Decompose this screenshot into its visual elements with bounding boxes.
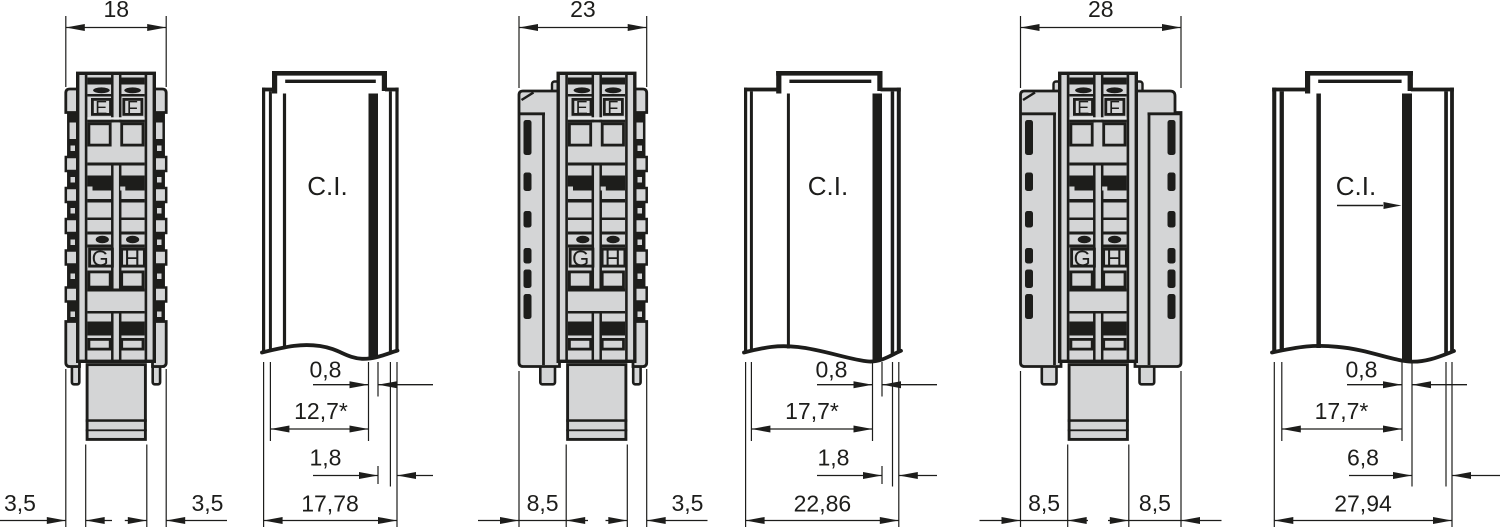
svg-text:23: 23 bbox=[570, 0, 596, 22]
svg-text:3,5: 3,5 bbox=[4, 490, 36, 516]
svg-text:E: E bbox=[1077, 98, 1089, 118]
svg-text:E: E bbox=[95, 98, 107, 118]
svg-text:F: F bbox=[607, 98, 618, 118]
svg-text:F: F bbox=[1109, 98, 1120, 118]
svg-text:28: 28 bbox=[1088, 0, 1114, 22]
svg-text:C.I.: C.I. bbox=[1336, 171, 1376, 201]
svg-text:0,8: 0,8 bbox=[816, 357, 848, 383]
svg-text:17,7*: 17,7* bbox=[785, 398, 839, 424]
svg-text:0,8: 0,8 bbox=[310, 357, 342, 383]
svg-text:8,5: 8,5 bbox=[527, 490, 559, 516]
svg-text:F: F bbox=[127, 98, 138, 118]
svg-text:17,78: 17,78 bbox=[301, 491, 359, 517]
svg-text:3,5: 3,5 bbox=[672, 490, 704, 516]
svg-text:22,86: 22,86 bbox=[794, 491, 852, 517]
svg-text:8,5: 8,5 bbox=[1139, 490, 1171, 516]
svg-text:1,8: 1,8 bbox=[310, 445, 342, 471]
svg-text:8,5: 8,5 bbox=[1028, 490, 1060, 516]
svg-text:G: G bbox=[572, 246, 589, 271]
svg-text:18: 18 bbox=[104, 0, 130, 22]
svg-text:6,8: 6,8 bbox=[1347, 445, 1379, 471]
svg-text:H: H bbox=[605, 246, 621, 271]
svg-text:1,8: 1,8 bbox=[818, 445, 850, 471]
svg-text:3,5: 3,5 bbox=[192, 490, 224, 516]
svg-text:E: E bbox=[576, 98, 588, 118]
svg-text:27,94: 27,94 bbox=[1334, 491, 1392, 517]
svg-text:0,8: 0,8 bbox=[1346, 357, 1378, 383]
svg-text:C.I.: C.I. bbox=[808, 171, 848, 201]
svg-text:12,7*: 12,7* bbox=[294, 398, 348, 424]
svg-text:G: G bbox=[1074, 246, 1091, 271]
svg-text:H: H bbox=[124, 246, 140, 271]
svg-text:G: G bbox=[92, 246, 109, 271]
svg-text:17,7*: 17,7* bbox=[1315, 398, 1369, 424]
svg-text:H: H bbox=[1106, 246, 1122, 271]
svg-text:C.I.: C.I. bbox=[307, 171, 347, 201]
